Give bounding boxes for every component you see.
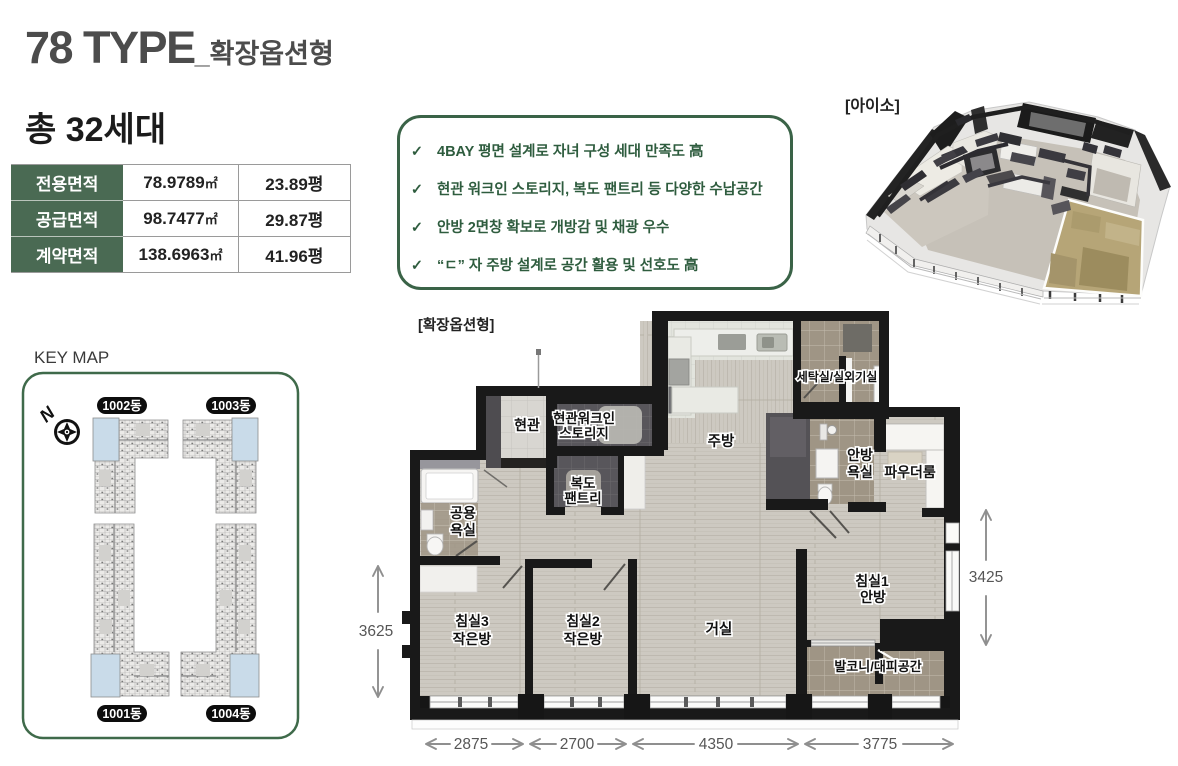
svg-text:욕실: 욕실 (450, 522, 476, 538)
svg-text:3625: 3625 (359, 623, 393, 640)
svg-text:현관: 현관 (514, 417, 540, 433)
svg-text:세탁실/실외기실: 세탁실/실외기실 (797, 369, 878, 384)
svg-text:작은방: 작은방 (564, 631, 603, 647)
svg-text:스토리지: 스토리지 (559, 426, 609, 441)
svg-text:욕실: 욕실 (847, 464, 873, 480)
svg-text:발코니/대피공간: 발코니/대피공간 (834, 659, 921, 674)
svg-text:3425: 3425 (969, 569, 1003, 586)
svg-text:침실2: 침실2 (566, 613, 600, 629)
svg-text:1001동: 1001동 (102, 707, 142, 721)
svg-text:파우더룸: 파우더룸 (884, 464, 936, 480)
svg-text:1003동: 1003동 (211, 399, 251, 413)
svg-text:안방: 안방 (860, 589, 886, 605)
svg-text:현관워크인: 현관워크인 (553, 410, 615, 426)
svg-text:1004동: 1004동 (211, 707, 251, 721)
svg-text:작은방: 작은방 (453, 631, 492, 647)
svg-text:2875: 2875 (454, 736, 488, 753)
svg-text:2700: 2700 (560, 736, 595, 753)
svg-text:3775: 3775 (863, 736, 897, 753)
svg-text:복도: 복도 (571, 476, 596, 491)
svg-text:팬트리: 팬트리 (564, 491, 601, 506)
svg-text:1002동: 1002동 (102, 399, 142, 413)
svg-text:공용: 공용 (450, 505, 476, 521)
svg-text:침실3: 침실3 (455, 613, 489, 629)
svg-text:거실: 거실 (706, 621, 733, 638)
svg-text:안방: 안방 (847, 447, 873, 463)
svg-text:4350: 4350 (699, 736, 734, 753)
svg-text:주방: 주방 (708, 432, 735, 450)
svg-text:침실1: 침실1 (855, 573, 889, 589)
